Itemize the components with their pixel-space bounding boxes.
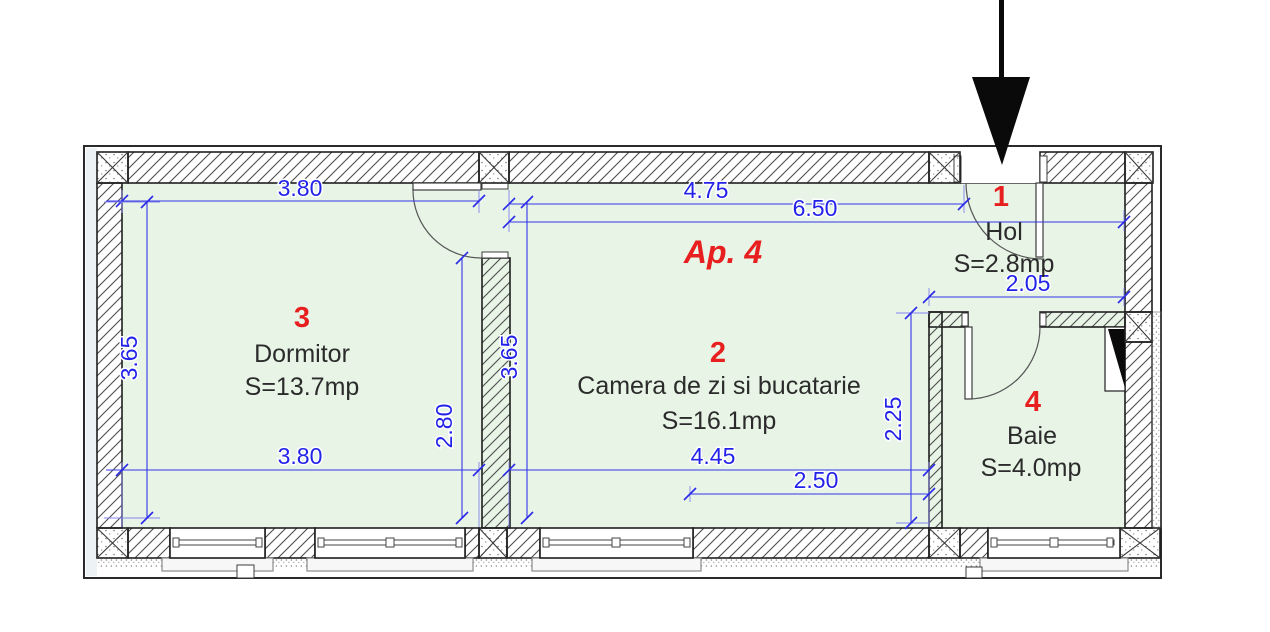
room-area: S=2.8mp	[954, 250, 1055, 278]
pier	[97, 528, 128, 558]
apartment-label: Ap. 4	[683, 234, 762, 270]
pier	[929, 528, 960, 558]
door-jamb	[482, 252, 508, 258]
pier	[97, 152, 128, 183]
door-jamb	[962, 313, 968, 326]
svg-text:3.65: 3.65	[496, 335, 522, 380]
pier	[1125, 152, 1153, 183]
room-name: Hol	[985, 218, 1023, 246]
room-area: S=4.0mp	[981, 454, 1082, 482]
pier	[1120, 528, 1160, 558]
door-jamb	[482, 183, 508, 189]
floor-plan-svg: 3.80 4.75 6.50 2.05 3.65	[0, 0, 1270, 632]
room-number: 3	[294, 302, 310, 334]
room-number: 4	[1025, 386, 1041, 418]
svg-text:4.75: 4.75	[684, 177, 729, 203]
door-jamb	[1040, 156, 1047, 182]
room-number: 2	[710, 337, 726, 369]
room-name: Camera de zi si bucatarie	[577, 372, 860, 400]
wall-baie-left	[929, 312, 942, 528]
wall-right-baie	[1125, 342, 1152, 528]
room-name: Dormitor	[254, 340, 350, 368]
floor-plan-page: 3.80 4.75 6.50 2.05 3.65	[0, 0, 1270, 632]
svg-text:3.80: 3.80	[278, 175, 323, 201]
room-area: S=16.1mp	[662, 407, 777, 435]
pier	[479, 528, 507, 558]
room-area: S=13.7mp	[245, 373, 360, 401]
entrance-arrow-icon	[972, 0, 1030, 165]
room-number: 1	[993, 181, 1009, 213]
left-margin-strip	[86, 148, 97, 576]
sill-marker	[237, 565, 254, 578]
pier	[479, 152, 509, 183]
wall-interior-dormitor	[482, 258, 510, 528]
window	[980, 528, 1128, 571]
svg-text:2.80: 2.80	[431, 404, 457, 449]
window	[162, 528, 273, 571]
pier	[929, 152, 960, 183]
window	[307, 528, 473, 571]
window	[532, 528, 701, 571]
sill-marker	[966, 567, 982, 578]
room-name: Baie	[1007, 422, 1057, 450]
svg-text:4.45: 4.45	[691, 443, 736, 469]
svg-text:2.25: 2.25	[880, 397, 906, 442]
svg-text:6.50: 6.50	[793, 195, 838, 221]
insulation-strip-right	[1152, 312, 1161, 528]
svg-text:3.80: 3.80	[278, 443, 323, 469]
pier	[1125, 312, 1152, 342]
svg-text:2.50: 2.50	[794, 467, 839, 493]
door-jamb	[1040, 313, 1046, 326]
bottom-wall	[97, 528, 1160, 578]
wall-top-hol	[1040, 152, 1125, 183]
wall-baie-top-right	[1040, 312, 1125, 327]
svg-text:3.65: 3.65	[116, 336, 142, 381]
